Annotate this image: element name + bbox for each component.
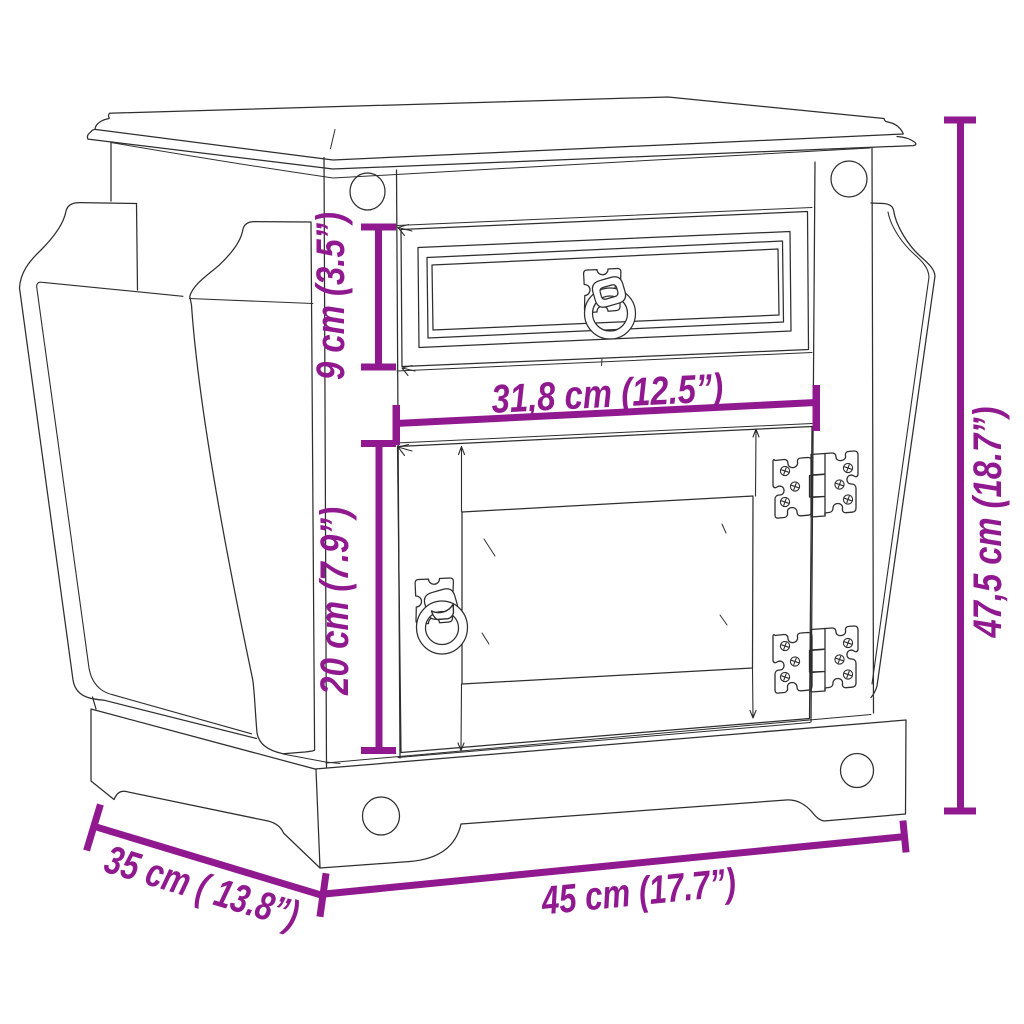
svg-text:35 cm ( 13.8”): 35 cm ( 13.8”) <box>100 838 304 938</box>
svg-text:31,8 cm (12.5”): 31,8 cm (12.5”) <box>490 366 724 422</box>
svg-text:20 cm (7.9”): 20 cm (7.9”) <box>313 507 357 696</box>
svg-text:9 cm (3.5”): 9 cm (3.5”) <box>309 212 353 380</box>
svg-text:47,5 cm (18.7”): 47,5 cm (18.7”) <box>966 407 1010 639</box>
